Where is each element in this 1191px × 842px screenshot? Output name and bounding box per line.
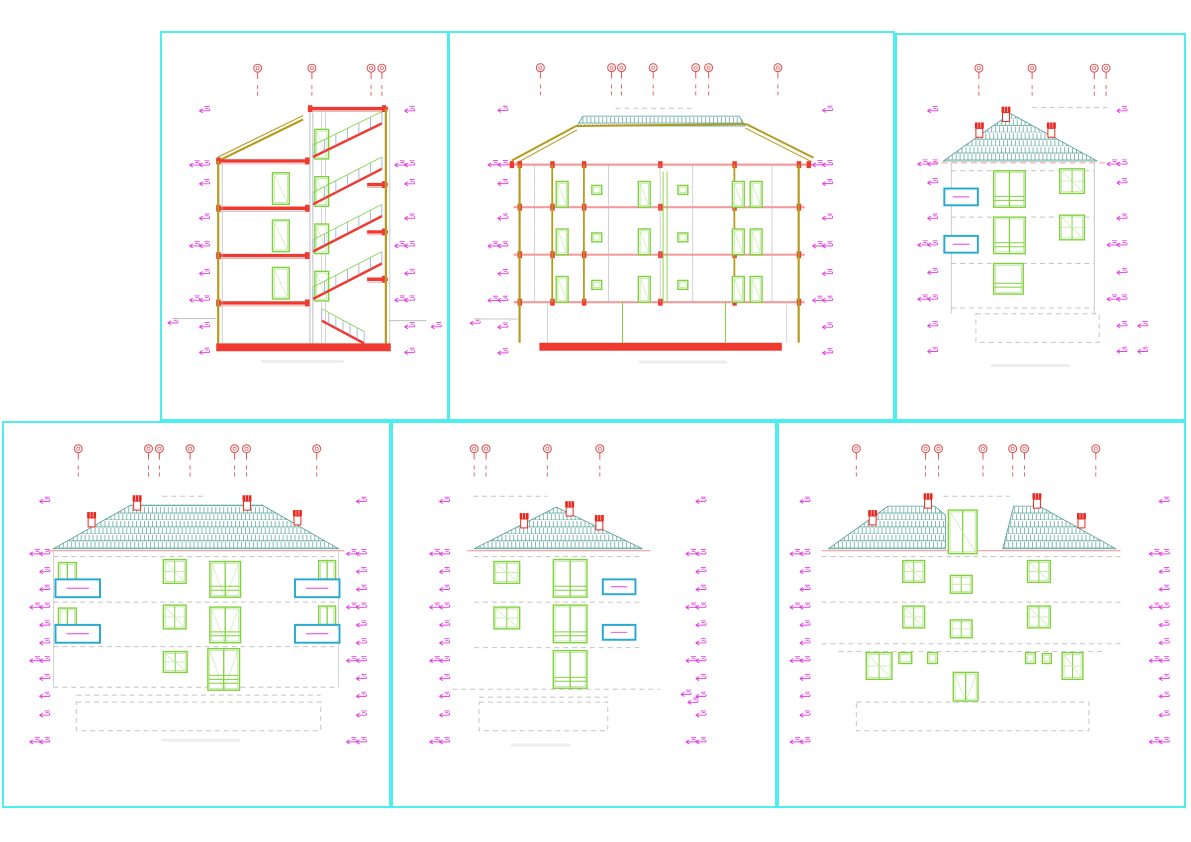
level-marker: [404, 296, 414, 302]
level-marker: [199, 269, 209, 275]
level-marker: [822, 106, 832, 112]
level-marker: [395, 161, 405, 167]
level-marker: [686, 603, 696, 609]
level-marker: [429, 738, 439, 744]
level-marker: [431, 323, 441, 329]
level-marker: [39, 738, 49, 744]
chimney-body: [294, 516, 301, 525]
chimney-body: [596, 521, 603, 530]
grid-bubble: [979, 445, 987, 453]
chimney-cap: [87, 512, 96, 518]
grid-bubble: [1092, 445, 1100, 453]
level-marker: [696, 497, 706, 503]
level-marker: [696, 738, 706, 744]
level-marker: [498, 179, 508, 185]
level-marker: [927, 347, 937, 353]
level-marker: [439, 711, 449, 717]
foundation-bar: [539, 343, 781, 351]
level-marker: [790, 656, 800, 662]
level-marker: [356, 603, 366, 609]
level-marker: [429, 603, 439, 609]
level-marker: [39, 674, 49, 680]
level-marker: [356, 567, 366, 573]
level-marker: [1138, 322, 1148, 328]
level-marker: [800, 603, 810, 609]
level-marker: [39, 692, 49, 698]
stair-section-drawing-svg: [162, 33, 447, 419]
level-marker: [356, 674, 366, 680]
level-marker: [189, 242, 199, 248]
grid-bubble: [1021, 445, 1029, 453]
grid-bubble: [243, 445, 251, 453]
column-cap: [305, 205, 309, 212]
level-marker: [498, 106, 508, 112]
level-marker: [39, 603, 49, 609]
grid-bubble: [1028, 64, 1036, 72]
level-marker: [498, 214, 508, 220]
level-marker: [822, 214, 832, 220]
level-marker: [1117, 347, 1127, 353]
grid-bubble: [649, 64, 657, 72]
level-marker: [199, 214, 209, 220]
level-marker: [439, 603, 449, 609]
level-marker: [1117, 295, 1127, 301]
outline-rect: [479, 702, 608, 731]
line: [218, 119, 303, 160]
right-elevation-drawing-svg: [897, 35, 1184, 419]
level-marker: [696, 585, 706, 591]
level-marker: [199, 180, 209, 186]
level-marker: [439, 639, 449, 645]
level-marker: [696, 711, 706, 717]
level-marker: [812, 242, 822, 248]
level-marker: [498, 349, 508, 355]
column-cap: [305, 252, 309, 259]
drawing-title-faint: [638, 361, 727, 364]
level-marker: [395, 242, 405, 248]
chimney-cap: [243, 495, 252, 501]
chimney-cap: [975, 122, 984, 128]
level-marker: [822, 296, 832, 302]
level-marker: [356, 711, 366, 717]
level-marker: [346, 656, 356, 662]
level-marker: [688, 698, 698, 704]
level-marker: [1159, 738, 1169, 744]
level-marker: [1159, 567, 1169, 573]
outline-rect: [76, 702, 320, 731]
chimney-body: [244, 501, 251, 510]
long-section-drawing: [448, 31, 895, 421]
level-marker: [1159, 585, 1169, 591]
level-marker: [168, 319, 178, 325]
chimney-body: [1033, 499, 1040, 508]
level-marker: [1159, 497, 1169, 503]
chimney-cap: [1002, 107, 1011, 113]
level-marker: [800, 550, 810, 556]
level-marker: [498, 296, 508, 302]
level-marker: [800, 585, 810, 591]
level-marker: [822, 349, 832, 355]
level-marker: [199, 107, 209, 113]
level-marker: [199, 161, 209, 167]
drawing-title-faint: [161, 739, 240, 742]
level-marker: [439, 656, 449, 662]
level-marker: [439, 674, 449, 680]
level-marker: [1159, 550, 1169, 556]
level-marker: [696, 674, 706, 680]
level-marker: [488, 296, 498, 302]
level-marker: [189, 296, 199, 302]
drawing-title-faint: [991, 364, 1070, 367]
level-marker: [918, 160, 928, 166]
level-marker: [488, 161, 498, 167]
level-marker: [346, 603, 356, 609]
level-marker: [39, 656, 49, 662]
grid-bubble: [608, 64, 616, 72]
roof-tile-hatch: [829, 506, 946, 549]
window-frame: [994, 263, 1024, 294]
level-marker: [189, 161, 199, 167]
line: [514, 130, 577, 165]
level-marker: [1159, 674, 1169, 680]
level-marker: [822, 269, 832, 275]
chimney-body: [976, 128, 983, 137]
level-marker: [30, 603, 40, 609]
level-marker: [30, 656, 40, 662]
level-marker: [822, 323, 832, 329]
level-marker: [1149, 738, 1159, 744]
left-elevation-drawing-svg: [393, 423, 775, 806]
level-marker: [346, 550, 356, 556]
line: [746, 124, 813, 158]
level-marker: [39, 585, 49, 591]
level-marker: [1159, 639, 1169, 645]
roof-tile-hatch: [1003, 506, 1116, 549]
chimney-cap: [1032, 493, 1041, 499]
level-marker: [822, 179, 832, 185]
level-marker: [812, 161, 822, 167]
grid-bubble: [470, 445, 478, 453]
level-marker: [1117, 179, 1127, 185]
chimney-body: [925, 499, 932, 508]
chimney-cap: [868, 510, 877, 516]
grid-bubble: [254, 64, 262, 72]
level-marker: [822, 242, 832, 248]
chimney-body: [134, 501, 141, 510]
level-marker: [498, 161, 508, 167]
level-marker: [404, 107, 414, 113]
grid-bubble: [692, 64, 700, 72]
level-marker: [1159, 603, 1169, 609]
level-marker: [927, 107, 937, 113]
level-marker: [439, 585, 449, 591]
level-marker: [1117, 160, 1127, 166]
level-marker: [199, 242, 209, 248]
level-marker: [1149, 550, 1159, 556]
drawing-title-faint: [511, 744, 570, 747]
level-marker: [488, 242, 498, 248]
right-elevation-drawing: [895, 33, 1186, 421]
grid-bubble: [186, 445, 194, 453]
level-marker: [356, 692, 366, 698]
level-marker: [927, 241, 937, 247]
grid-bubble: [543, 445, 551, 453]
level-marker: [927, 322, 937, 328]
level-marker: [927, 179, 937, 185]
level-marker: [30, 550, 40, 556]
level-marker: [404, 242, 414, 248]
chimney-body: [566, 507, 573, 516]
level-marker: [1107, 241, 1117, 247]
level-marker: [498, 269, 508, 275]
level-marker: [800, 711, 810, 717]
level-marker: [800, 692, 810, 698]
level-marker: [822, 161, 832, 167]
level-marker: [800, 738, 810, 744]
grid-bubble: [774, 64, 782, 72]
level-marker: [39, 639, 49, 645]
outline-rect: [856, 702, 1089, 731]
level-marker: [1159, 656, 1169, 662]
level-marker: [498, 242, 508, 248]
level-marker: [790, 738, 800, 744]
grid-bubble: [934, 445, 942, 453]
level-marker: [356, 550, 366, 556]
chimney-body: [521, 519, 528, 528]
level-marker: [356, 738, 366, 744]
front-elevation-drawing: [2, 421, 391, 808]
level-marker: [927, 214, 937, 220]
front-elevation-drawing-svg: [4, 423, 389, 806]
chimney-cap: [133, 495, 142, 501]
level-marker: [790, 603, 800, 609]
long-section-drawing-svg: [450, 33, 893, 419]
level-marker: [439, 567, 449, 573]
rear-elevation-drawing: [777, 421, 1186, 808]
level-marker: [199, 296, 209, 302]
level-marker: [800, 674, 810, 680]
level-marker: [356, 497, 366, 503]
grid-bubble: [74, 445, 82, 453]
level-marker: [686, 738, 696, 744]
level-marker: [800, 497, 810, 503]
level-marker: [439, 621, 449, 627]
column-cap: [308, 105, 312, 112]
grid-bubble: [922, 445, 930, 453]
drawing-title-faint: [261, 360, 345, 363]
level-marker: [356, 656, 366, 662]
chimney-cap: [924, 493, 933, 499]
level-marker: [696, 621, 706, 627]
level-marker: [696, 692, 706, 698]
left-elevation-drawing: [391, 421, 777, 808]
level-marker: [696, 639, 706, 645]
grid-bubble: [1090, 64, 1098, 72]
level-marker: [800, 656, 810, 662]
level-marker: [686, 656, 696, 662]
chimney-body: [869, 516, 876, 525]
level-marker: [1117, 322, 1127, 328]
level-marker: [681, 690, 691, 696]
level-marker: [1117, 241, 1127, 247]
grid-bubble: [705, 64, 713, 72]
level-marker: [1149, 656, 1159, 662]
level-marker: [1107, 295, 1117, 301]
level-marker: [1149, 603, 1159, 609]
level-marker: [790, 550, 800, 556]
level-marker: [800, 639, 810, 645]
grid-bubble: [1102, 64, 1110, 72]
level-marker: [39, 711, 49, 717]
grid-bubble: [378, 64, 386, 72]
chimney-cap: [1047, 122, 1056, 128]
column-cap: [305, 299, 309, 306]
roof-tile-hatch: [943, 114, 1097, 161]
level-marker: [498, 323, 508, 329]
chimney-body: [88, 518, 95, 527]
level-marker: [1117, 214, 1127, 220]
level-marker: [439, 550, 449, 556]
line: [218, 116, 303, 157]
grid-bubble: [1009, 445, 1017, 453]
level-marker: [800, 621, 810, 627]
column-cap: [807, 161, 811, 168]
level-marker: [39, 567, 49, 573]
level-marker: [30, 738, 40, 744]
grid-bubble: [596, 445, 604, 453]
level-marker: [199, 348, 209, 354]
roof-tile-hatch: [474, 507, 642, 549]
level-marker: [439, 692, 449, 698]
level-marker: [1138, 347, 1148, 353]
level-marker: [429, 656, 439, 662]
chimney-body: [1078, 519, 1085, 528]
grid-bubble: [367, 64, 375, 72]
level-marker: [356, 621, 366, 627]
level-marker: [429, 550, 439, 556]
grid-bubble: [313, 445, 321, 453]
chimney-body: [1048, 128, 1055, 137]
level-marker: [356, 639, 366, 645]
level-marker: [1107, 160, 1117, 166]
level-marker: [395, 296, 405, 302]
grid-bubble: [618, 64, 626, 72]
foundation-bar: [216, 343, 391, 351]
level-marker: [686, 550, 696, 556]
level-marker: [1159, 692, 1169, 698]
level-marker: [404, 214, 414, 220]
grid-bubble: [145, 445, 153, 453]
column-cap: [305, 157, 309, 164]
level-marker: [696, 656, 706, 662]
chimney-body: [1003, 113, 1010, 122]
level-marker: [199, 323, 209, 329]
level-marker: [404, 323, 414, 329]
grid-bubble: [308, 64, 316, 72]
level-marker: [927, 268, 937, 274]
level-marker: [439, 497, 449, 503]
level-marker: [918, 241, 928, 247]
level-marker: [696, 567, 706, 573]
level-marker: [800, 567, 810, 573]
chimney-cap: [1077, 513, 1086, 519]
rear-elevation-drawing-svg: [779, 423, 1184, 806]
line: [745, 128, 811, 162]
level-marker: [356, 585, 366, 591]
line: [512, 126, 576, 161]
level-marker: [404, 180, 414, 186]
chimney-cap: [565, 501, 574, 507]
level-marker: [1117, 268, 1127, 274]
chimney-cap: [520, 513, 529, 519]
drawing-canvas: [0, 0, 1191, 842]
grid-bubble: [231, 445, 239, 453]
chimney-cap: [293, 510, 302, 516]
grid-bubble: [975, 64, 983, 72]
level-marker: [470, 319, 480, 325]
level-marker: [39, 497, 49, 503]
level-marker: [918, 295, 928, 301]
column-cap: [510, 161, 514, 168]
chimney-cap: [595, 515, 604, 521]
level-marker: [39, 621, 49, 627]
level-marker: [404, 161, 414, 167]
grid-bubble: [482, 445, 490, 453]
grid-bubble: [852, 445, 860, 453]
level-marker: [439, 738, 449, 744]
stair-section-drawing: [160, 31, 449, 421]
level-marker: [927, 295, 937, 301]
level-marker: [696, 603, 706, 609]
grid-bubble: [536, 64, 544, 72]
level-marker: [404, 348, 414, 354]
grid-bubble: [155, 445, 163, 453]
outline-rect: [976, 314, 1099, 343]
level-marker: [1159, 711, 1169, 717]
level-marker: [696, 550, 706, 556]
level-marker: [1117, 107, 1127, 113]
level-marker: [404, 269, 414, 275]
level-marker: [1159, 621, 1169, 627]
level-marker: [812, 296, 822, 302]
level-marker: [346, 738, 356, 744]
